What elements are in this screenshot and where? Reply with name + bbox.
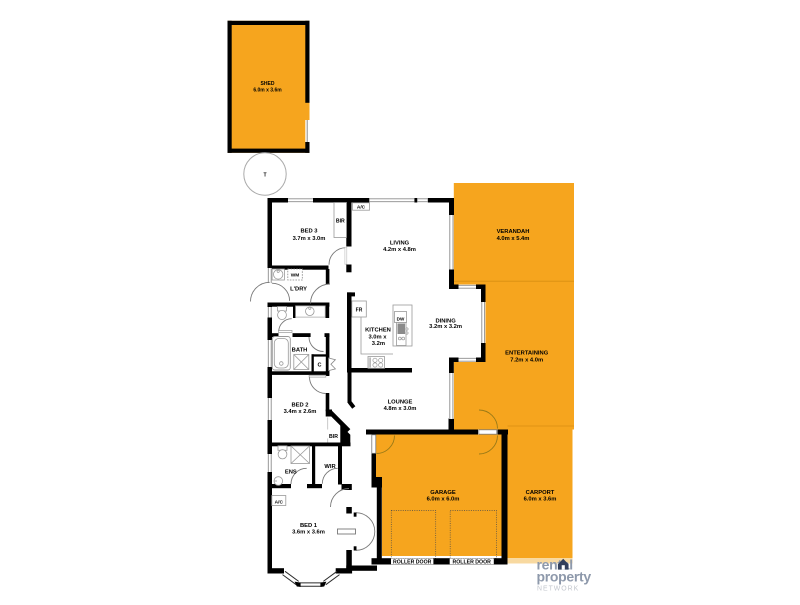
svg-text:GARAGE: GARAGE [430, 490, 456, 496]
svg-text:BED 1: BED 1 [300, 523, 318, 529]
svg-text:SHED: SHED [261, 81, 275, 87]
svg-text:7.2m x 4.0m: 7.2m x 4.0m [510, 357, 543, 363]
svg-text:4.8m x 3.0m: 4.8m x 3.0m [384, 406, 417, 412]
svg-text:BATH: BATH [292, 348, 308, 354]
svg-text:WM: WM [291, 273, 300, 279]
svg-text:6.0m x 3.6m: 6.0m x 3.6m [253, 88, 282, 94]
svg-text:ENS: ENS [285, 470, 297, 476]
svg-text:ROLLER DOOR: ROLLER DOOR [453, 559, 492, 565]
svg-text:VERANDAH: VERANDAH [497, 229, 530, 235]
svg-text:C: C [318, 362, 322, 368]
svg-text:3.2m x 3.2m: 3.2m x 3.2m [429, 324, 462, 330]
svg-text:3.2m: 3.2m [372, 341, 385, 347]
svg-text:3.7m x 3.0m: 3.7m x 3.0m [293, 236, 326, 242]
svg-text:A/C: A/C [275, 499, 284, 505]
svg-text:ENTERTAINING: ENTERTAINING [505, 351, 549, 357]
svg-text:DW: DW [397, 316, 405, 321]
svg-text:WIR: WIR [324, 464, 336, 470]
svg-text:3.4m x 2.6m: 3.4m x 2.6m [284, 409, 317, 415]
svg-text:6.0m x 3.6m: 6.0m x 3.6m [524, 497, 557, 503]
svg-text:3.0m x: 3.0m x [368, 335, 387, 341]
svg-text:6.0m x 6.0m: 6.0m x 6.0m [427, 497, 460, 503]
svg-text:NETWORK: NETWORK [537, 586, 579, 593]
svg-text:3.6m x 3.6m: 3.6m x 3.6m [292, 529, 325, 535]
svg-text:BED 2: BED 2 [291, 403, 308, 409]
svg-text:T: T [263, 172, 266, 178]
svg-text:FR: FR [356, 308, 363, 314]
svg-text:L'DRY: L'DRY [290, 287, 307, 293]
svg-text:property: property [537, 569, 592, 585]
svg-text:4.0m x 5.4m: 4.0m x 5.4m [497, 236, 530, 242]
svg-text:A/C: A/C [357, 205, 366, 211]
svg-text:4.2m x 4.8m: 4.2m x 4.8m [383, 247, 416, 253]
svg-text:BIR: BIR [329, 434, 338, 440]
svg-text:CARPORT: CARPORT [526, 490, 555, 496]
svg-text:LOUNGE: LOUNGE [388, 400, 413, 406]
svg-text:BED 3: BED 3 [300, 229, 318, 235]
svg-text:LIVING: LIVING [390, 241, 410, 247]
svg-text:KITCHEN: KITCHEN [365, 328, 391, 334]
svg-text:BIR: BIR [336, 218, 345, 224]
svg-text:ROLLER DOOR: ROLLER DOOR [393, 559, 432, 565]
